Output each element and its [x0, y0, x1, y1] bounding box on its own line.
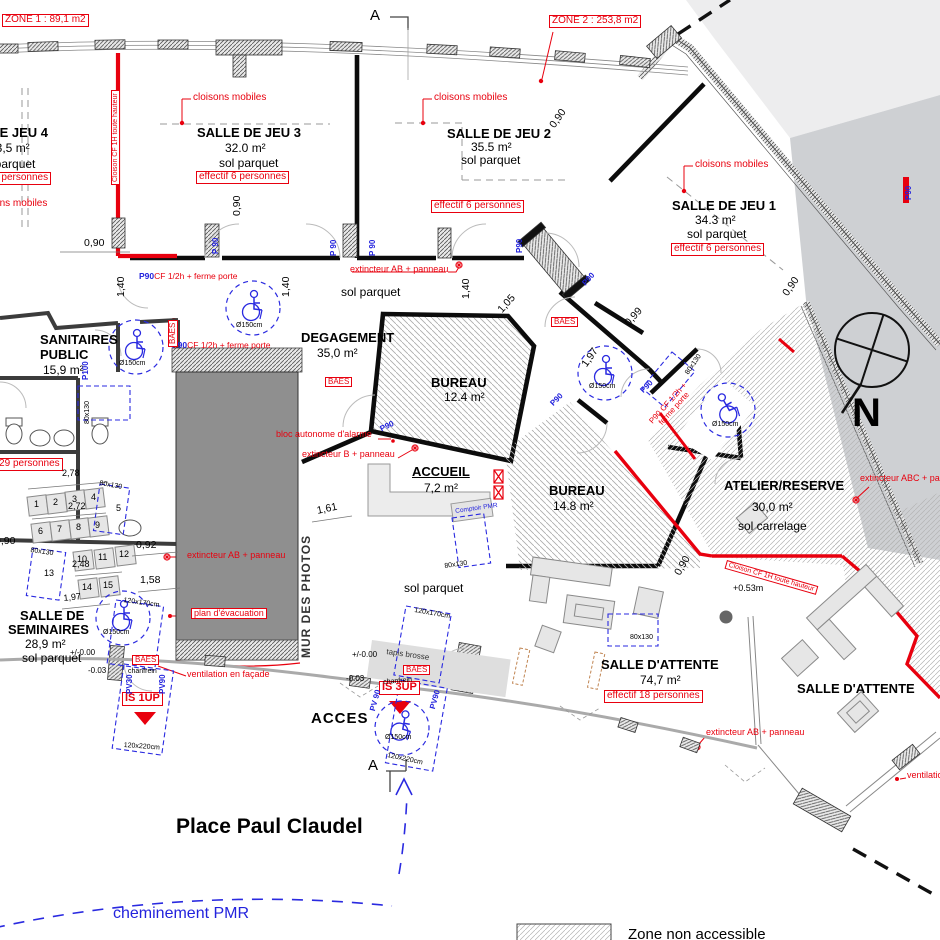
room-seminaires-title1: SALLE DE [20, 609, 84, 623]
p90cf-label-1: P90CF 1/2h + ferme porte [139, 272, 238, 281]
d150-5: Ø150cm [103, 629, 129, 636]
seat-6: 6 [38, 527, 43, 536]
room-jeu2-floor: sol parquet [461, 154, 520, 167]
section-marker-a-top: A [370, 8, 380, 24]
room-bureau2-title: BUREAU [549, 484, 605, 498]
size-80x130-5: 80x130 [630, 634, 653, 641]
seat-5: 5 [116, 504, 121, 513]
room-attente2-title: SALLE D'ATTENTE [797, 682, 915, 696]
dim-140-c: 1,40 [461, 279, 472, 299]
cheminement-pmr-label: cheminement PMR [113, 906, 249, 923]
room-atelier-title: ATELIER/RESERVE [724, 479, 844, 493]
room-jeu1-area: 34.3 m² [695, 214, 736, 227]
seat-3: 3 [72, 495, 77, 504]
door-p90-4: P90 [516, 239, 524, 253]
mur-des-photos-label: MUR DES PHOTOS [300, 535, 313, 658]
ext-abc: extincteur ABC + panneau [860, 474, 940, 483]
ventilation-1: ventilation en façade [187, 670, 270, 679]
zone2-label: ZONE 2 : 253,8 m2 [549, 15, 641, 28]
attente1-eff: effectif 18 personnes [604, 690, 703, 703]
level-0-sem: +/-0.00 [70, 649, 95, 657]
dim-197-a: 1,97 [63, 592, 81, 603]
section-marker-a-bottom: A [368, 758, 378, 774]
plan-evacuation: plan d'évacuation [191, 608, 267, 619]
cloisons-mobiles-jeu1: cloisons mobiles [695, 160, 768, 171]
room-bureau1-title: BUREAU [431, 376, 487, 390]
door-pv30: PV30 [126, 674, 134, 694]
seat-14: 14 [82, 583, 92, 592]
cloisons-mobiles-jeu4: cloisons mobiles [0, 199, 47, 210]
room-accueil-area: 7,2 m² [424, 482, 458, 495]
legend-zone-label: Zone non accessible [628, 927, 766, 940]
door-p100: P100 [82, 361, 90, 380]
fire-hose-icon [494, 470, 503, 499]
seat-4: 4 [91, 493, 96, 502]
seminaires-eff: effectif 29 personnes [0, 458, 63, 471]
cloisons-mobiles-jeu3: cloisons mobiles [193, 93, 266, 104]
room-bureau1-area: 12.4 m² [444, 391, 485, 404]
room-jeu2-eff: effectif 6 personnes [431, 200, 524, 213]
seat-1: 1 [34, 500, 39, 509]
d150-6: Ø150cm [385, 734, 411, 741]
room-bureau2-area: 14.8 m² [553, 500, 594, 513]
ventilation-2: ventilation en façade [907, 771, 940, 780]
level-053: +0.53m [733, 584, 763, 593]
baes-1: BAES [325, 377, 352, 387]
dim-090-b: 0,90 [232, 196, 243, 216]
room-jeu1-floor: sol parquet [687, 228, 746, 241]
dim-090-a: 0,90 [84, 238, 104, 249]
ext-ab-1: extincteur AB + panneau [350, 265, 448, 274]
curtain-wall [0, 26, 688, 77]
acces-label: ACCES [311, 711, 369, 727]
level-m03-sem: -0.03 [88, 667, 106, 675]
door-leafs-brown [513, 648, 605, 689]
door-p90-2: P 90 [330, 240, 338, 256]
dim-140-b: 1,40 [281, 277, 292, 297]
zone1-label: ZONE 1 : 89,1 m2 [2, 14, 89, 27]
level-0-acc: +/-0.00 [352, 651, 377, 659]
baes-3: BAES [132, 655, 159, 665]
mobile-partitions-dashed [22, 88, 783, 270]
room-atelier-floor: sol carrelage [738, 520, 807, 533]
room-sanitaires-title2: PUBLIC [40, 348, 88, 362]
ext-b: extincteur B + panneau [302, 450, 395, 459]
d150-2: Ø150cm [236, 322, 262, 329]
bloc-alarme: bloc autonome d'alarme [276, 430, 372, 439]
p90cf-label-2: P90CF 1/2h + ferme porte [172, 341, 271, 350]
room-atelier-area: 30,0 m² [752, 501, 793, 514]
d150-3: Ø150cm [589, 383, 615, 390]
room-seminaires-area: 28,9 m² [25, 638, 66, 651]
room-jeu3-title: SALLE DE JEU 3 [197, 126, 301, 140]
d150-1: Ø150cm [119, 360, 145, 367]
room-jeu3-eff: effectif 6 personnes [196, 171, 289, 184]
room-jeu4-title: SALLE DE JEU 4 [0, 126, 48, 140]
seat-12: 12 [119, 550, 129, 559]
door-p90-1: P 90 [212, 238, 220, 254]
is1up-label: IS 1UP [122, 692, 163, 706]
dim-278: 2,78 [62, 469, 80, 478]
cloisons-mobiles-jeu2: cloisons mobiles [434, 93, 507, 104]
seat-7: 7 [57, 525, 62, 534]
room-jeu2-area: 35.5 m² [471, 141, 512, 154]
ext-ab-3: extincteur AB + panneau [706, 728, 804, 737]
room-jeu3-area: 32.0 m² [225, 142, 266, 155]
seat-2: 2 [53, 498, 58, 507]
seat-11: 11 [98, 553, 107, 562]
room-jeu2-title: SALLE DE JEU 2 [447, 127, 551, 141]
degagement-floor: sol parquet [341, 286, 400, 299]
room-jeu4-area: 33,5 m² [0, 142, 30, 155]
room-degagement-title: DEGAGEMENT [301, 331, 394, 345]
room-degagement-area: 35,0 m² [317, 347, 358, 360]
legend-swatch [517, 924, 611, 940]
column-post [720, 611, 733, 624]
room-sanitaires-title1: SANITAIRES [40, 333, 118, 347]
room-jeu4-floor: sol parquet [0, 158, 35, 171]
seat-8: 8 [76, 523, 81, 532]
door-pv90-1: PV90 [159, 674, 167, 694]
place-paul-claudel-label: Place Paul Claudel [176, 816, 363, 838]
sanitaires-walls [0, 313, 178, 544]
room-sanitaires-area: 15,9 m² [43, 364, 84, 377]
seat-10: 10 [77, 555, 87, 564]
size-80x130-1: 80x130 [84, 401, 91, 424]
baes-2: BAES [551, 317, 578, 327]
baes-4: BAES [403, 665, 430, 675]
north-label: N [852, 392, 881, 434]
d150-4: Ø150cm [712, 421, 738, 428]
room-accueil-title: ACCUEIL [412, 465, 470, 479]
seat-9: 9 [95, 521, 100, 530]
baes-5: BAES [168, 320, 178, 347]
seat-15: 15 [103, 581, 113, 590]
cloison-cf-left: Cloison CF 1H toute hauteur [111, 90, 120, 185]
acces-floor: sol parquet [404, 582, 463, 595]
seat-13: 13 [44, 569, 54, 578]
attente-furniture [529, 557, 903, 732]
ext-ab-2: extincteur AB + panneau [187, 551, 285, 560]
level-m03-acc: -0.03 [346, 675, 364, 683]
door-p90-9: P90 [905, 186, 913, 200]
dim-158: 1,58 [140, 575, 160, 586]
dim-092: 0,92 [136, 540, 156, 551]
room-seminaires-title2: SEMINAIRES [8, 623, 89, 637]
floor-plan: ZONE 1 : 89,1 m2 ZONE 2 : 253,8 m2 A A S… [0, 0, 940, 940]
room-jeu1-eff: effectif 6 personnes [671, 243, 764, 256]
dim-090-e: 0,90 [0, 536, 15, 547]
door-p90-3: P 90 [369, 240, 377, 256]
room-jeu4-eff: effectif 6 personnes [0, 172, 51, 185]
dim-140-a: 1,40 [116, 277, 127, 297]
floor-plan-drawing [0, 0, 940, 940]
room-jeu1-title: SALLE DE JEU 1 [672, 199, 776, 213]
room-attente1-area: 74,7 m² [640, 674, 681, 687]
room-attente1-title: SALLE D'ATTENTE [601, 658, 719, 672]
room-jeu3-floor: sol parquet [219, 157, 278, 170]
